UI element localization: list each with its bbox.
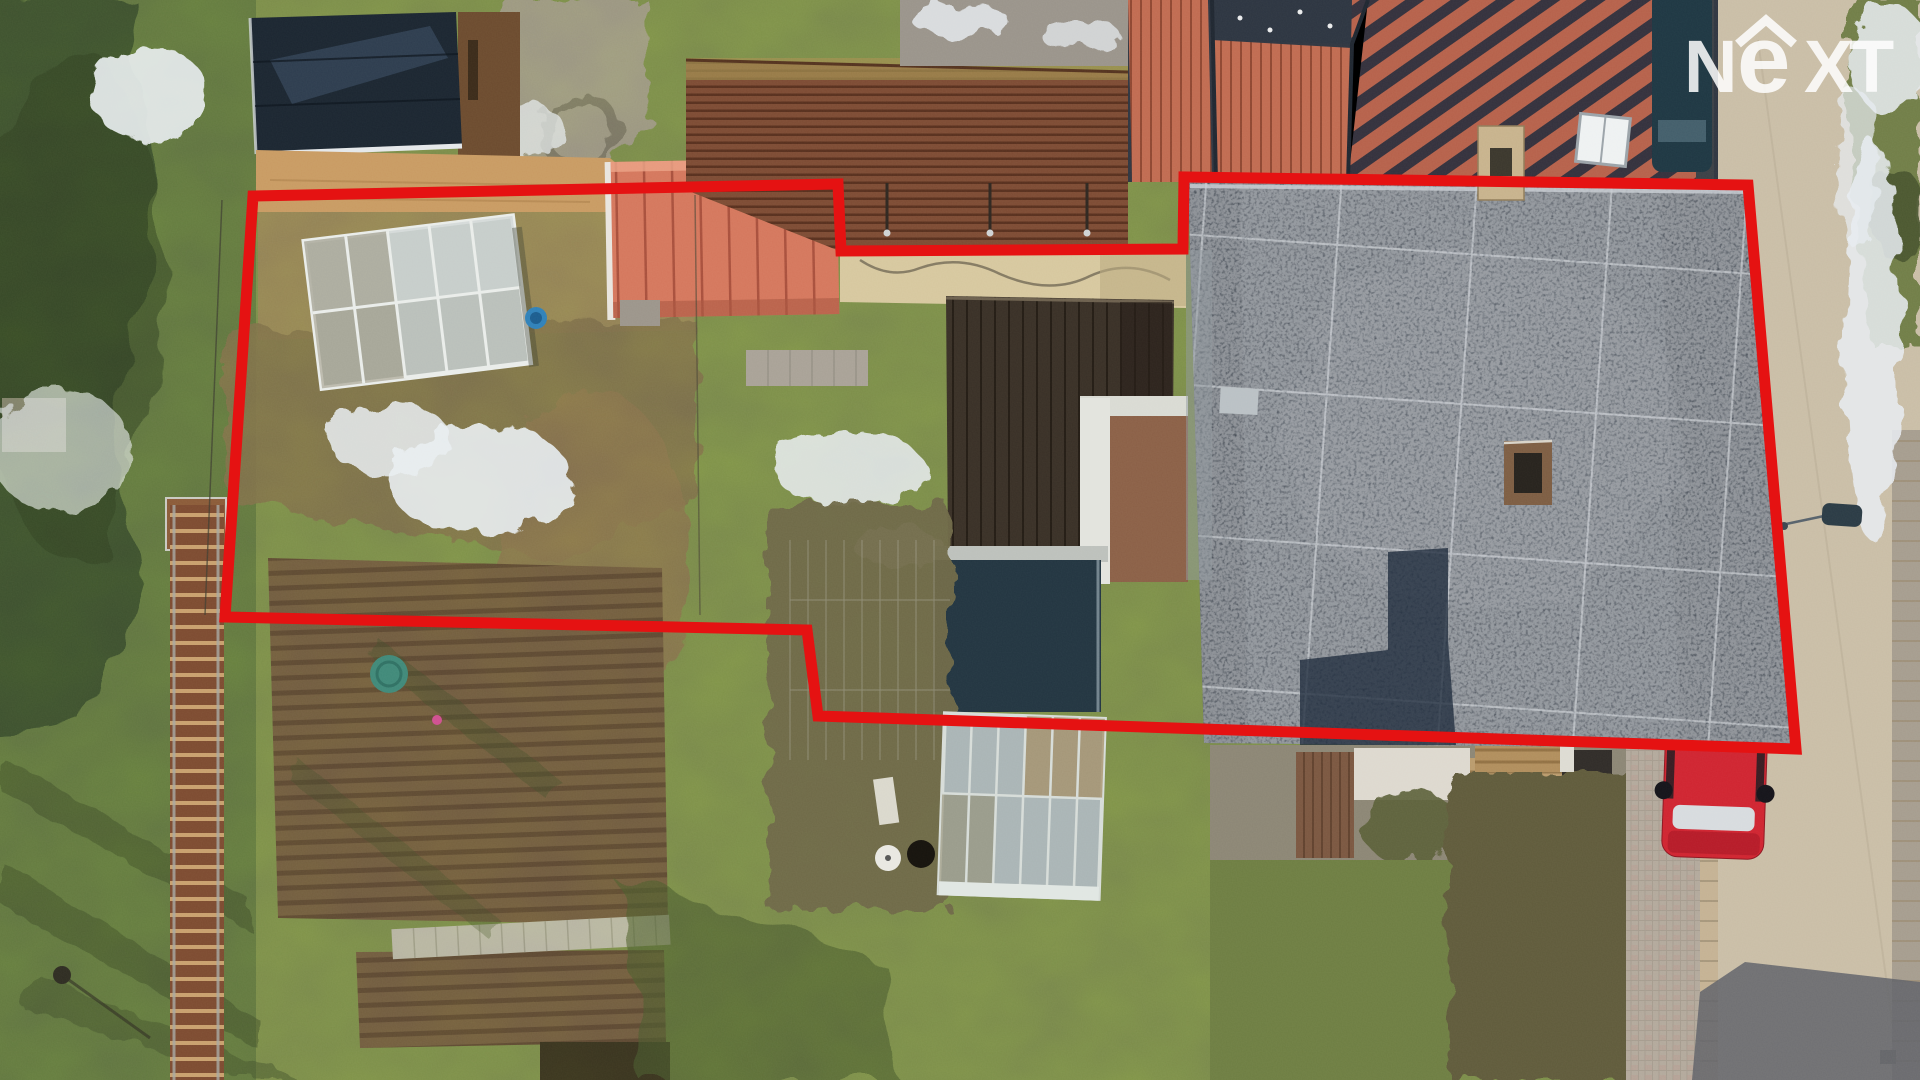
logo-letter-n: N [1684, 25, 1737, 108]
aerial-photo: N e X T [0, 0, 1920, 1080]
logo-letter-x: X [1804, 25, 1853, 108]
aerial-photo-stage: N e X T [0, 0, 1920, 1080]
logo-letter-t: T [1849, 25, 1894, 108]
photo-grain [0, 0, 1920, 1080]
